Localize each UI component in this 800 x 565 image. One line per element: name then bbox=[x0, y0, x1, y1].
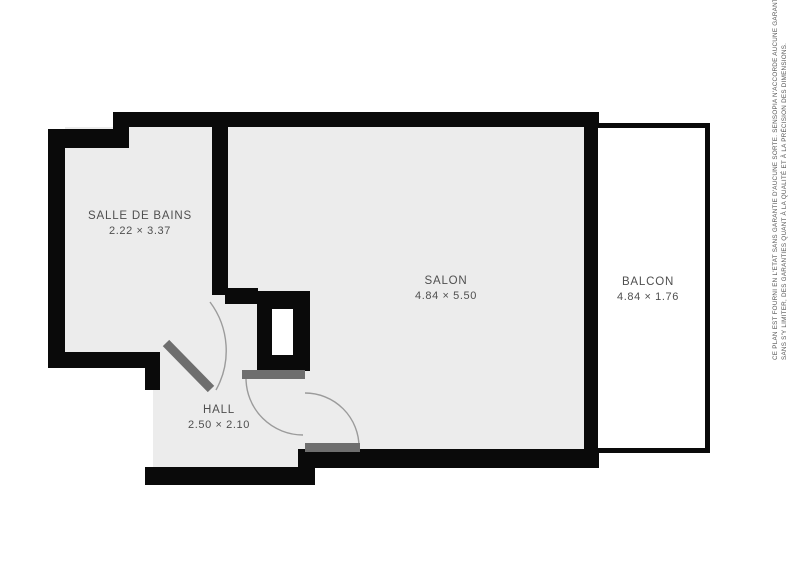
disclaimer-text: CE PLAN EST FOURNI EN L'ETAT SANS GARANT… bbox=[772, 8, 789, 360]
room-name: BALCON bbox=[617, 275, 679, 290]
room-name: SALON bbox=[415, 274, 477, 289]
wall-left-outer bbox=[48, 129, 65, 368]
door-leaf bbox=[166, 343, 211, 389]
wall-hall-bottom bbox=[145, 467, 315, 485]
room-dimensions: 4.84 × 1.76 bbox=[617, 290, 679, 305]
room-label-hall: HALL 2.50 × 2.10 bbox=[188, 403, 250, 433]
wall-bathroom-salon-divider bbox=[212, 127, 228, 295]
disclaimer-line-2: SANS S'Y LIMITER, DES GARANTIES QUANT À … bbox=[781, 8, 790, 360]
room-dimensions: 2.50 × 2.10 bbox=[188, 418, 250, 433]
door-swing-arc-entry bbox=[305, 393, 359, 447]
wall-bathroom-bottom bbox=[48, 352, 160, 368]
door-swing-arc-hall-salon bbox=[246, 378, 303, 435]
room-label-balcon: BALCON 4.84 × 1.76 bbox=[617, 275, 679, 305]
door-threshold-hall-salon bbox=[242, 370, 305, 379]
wall-bathroom-stub bbox=[145, 368, 160, 390]
floor-plan: SALLE DE BAINS 2.22 × 3.37 SALON 4.84 × … bbox=[0, 0, 800, 565]
room-label-salon: SALON 4.84 × 5.50 bbox=[415, 274, 477, 304]
wall-shaft-connector bbox=[225, 288, 258, 304]
door-swing-arc-bathroom bbox=[210, 302, 226, 390]
shaft-opening bbox=[272, 309, 293, 355]
room-label-salle-de-bains: SALLE DE BAINS 2.22 × 3.37 bbox=[88, 209, 192, 239]
room-name: HALL bbox=[188, 403, 250, 418]
disclaimer-line-1: CE PLAN EST FOURNI EN L'ETAT SANS GARANT… bbox=[772, 8, 781, 360]
door-threshold-entry bbox=[305, 443, 360, 452]
wall-top-main bbox=[113, 112, 599, 127]
room-dimensions: 2.22 × 3.37 bbox=[88, 224, 192, 239]
room-dimensions: 4.84 × 5.50 bbox=[415, 289, 477, 304]
room-name: SALLE DE BAINS bbox=[88, 209, 192, 224]
